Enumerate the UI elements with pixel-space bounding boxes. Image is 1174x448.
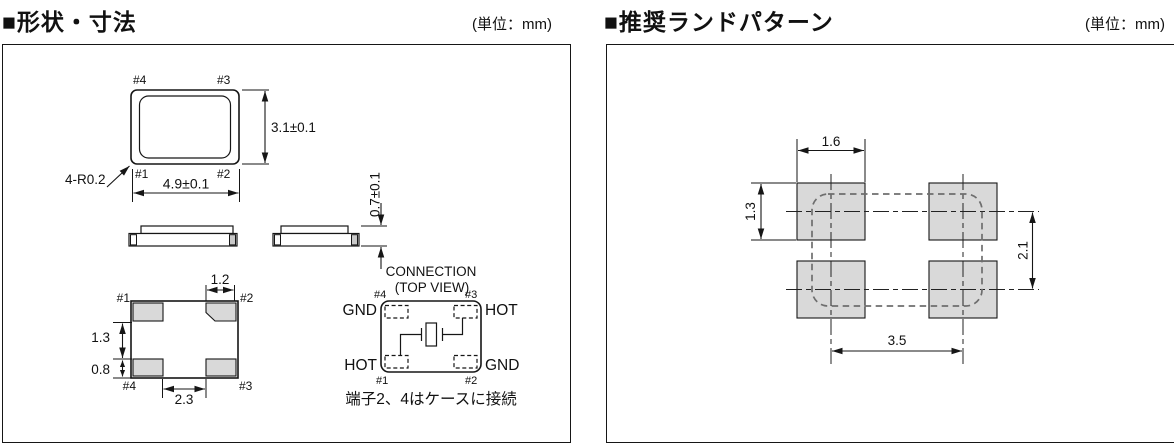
land-pad-height-label: 1.3 [743,202,758,221]
top-view-pin4-label: #4 [133,73,147,87]
connection-pin3-label: #3 [465,289,477,301]
connection-gnd-top-label: GND [343,302,377,319]
top-view-pin3-label: #3 [217,73,231,87]
datasheet-figure: ■形状・寸法 (単位：mm) ■推奨ランドパターン (単位：mm) #4 #3 … [0,0,1174,448]
vertical-pitch-label: 2.1 [1016,241,1031,260]
end-view-lid [281,226,348,234]
connection-hot-top-label: HOT [485,302,518,319]
width-dimension-label: 4.9±0.1 [163,176,210,192]
land-section-title: ■推奨ランドパターン [604,3,834,37]
pad-gap-dimension-label: 2.3 [175,392,194,407]
connection-gnd-bottom-label: GND [485,357,519,374]
pad-width-dimension-label: 1.2 [211,272,230,287]
bottom-view-pin2-label: #2 [240,291,254,305]
bottom-view-pin3-label: #3 [239,379,253,393]
bottom-pad-4 [133,359,163,376]
connection-pin1-label: #1 [376,375,388,387]
crystal-element [426,323,437,346]
connection-subtitle: (TOP VIEW) [395,280,470,295]
connection-hot-bottom-label: HOT [344,357,377,374]
top-view-pin2-label: #2 [217,167,231,181]
side-view-base [129,234,237,247]
thickness-dimension-label: 0.7±0.1 [368,172,383,217]
height-dimension-label: 3.1±0.1 [271,120,316,135]
bottom-pad-3 [206,359,236,376]
package-top-view: #4 #3 #1 #2 3.1±0.1 4.9±0.1 4-R0.2 [65,73,316,202]
package-outline [131,90,239,164]
shape-dimensions-drawing: #4 #3 #1 #2 3.1±0.1 4.9±0.1 4-R0.2 [3,45,567,439]
side-view-right-terminal [230,235,236,245]
horizontal-pitch-label: 3.5 [888,333,907,348]
shape-dimensions-panel: #4 #3 #1 #2 3.1±0.1 4.9±0.1 4-R0.2 [2,44,571,443]
side-view-left-terminal [131,235,137,245]
land-pad-width-label: 1.6 [822,134,841,149]
pad-height-dimension-label: 0.8 [91,362,110,377]
corner-radius-leader [107,166,130,187]
thickness-extension-lines [361,226,387,246]
pad-pitch-dimension-label: 1.3 [91,330,110,345]
bottom-view-pin4-label: #4 [123,379,137,393]
connection-pin2-label: #2 [465,375,477,387]
connection-pin4-label: #4 [374,289,386,301]
land-pattern-panel: 1.6 1.3 2.1 3.5 [606,44,1174,443]
bottom-view-pin1-label: #1 [117,291,131,305]
pad-width-extension-lines [206,285,235,301]
connection-note: 端子2、4はケースに接続 [345,390,517,408]
land-unit-label: (単位：mm) [1085,13,1165,34]
end-view-left-terminal [275,235,281,245]
side-view-lid [141,226,233,234]
bottom-pad-1 [133,303,163,321]
connection-title: CONNECTION [386,264,477,279]
connection-diagram: CONNECTION (TOP VIEW) #4 #3 #1 #2 GND HO… [343,264,520,408]
end-view-right-terminal [352,235,358,245]
package-bottom-view: #1 #2 #4 #3 1.2 1.3 0.8 2.3 [91,272,253,407]
shape-unit-label: (単位：mm) [472,13,552,34]
top-view-pin1-label: #1 [135,167,149,181]
shape-section-title: ■形状・寸法 [2,3,137,37]
land-pattern-drawing: 1.6 1.3 2.1 3.5 [607,45,1171,439]
end-view-base [273,234,359,247]
land-pads [797,183,997,318]
corner-radius-label: 4-R0.2 [65,172,106,187]
